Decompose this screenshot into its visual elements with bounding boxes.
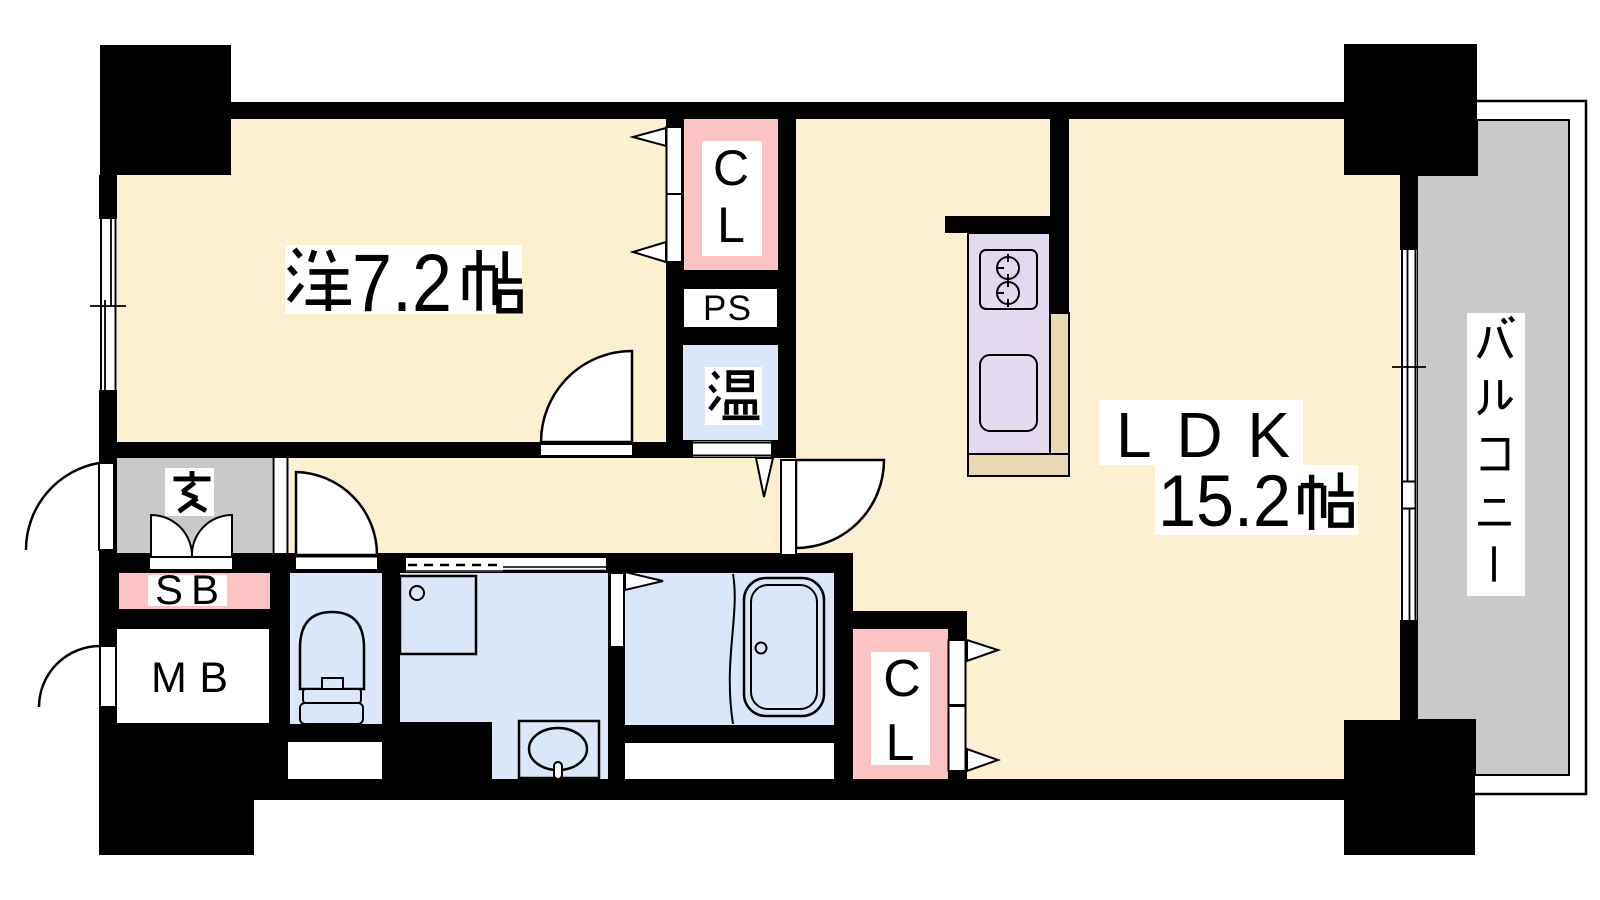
svg-text:L: L: [886, 714, 915, 772]
svg-text:C: C: [883, 650, 921, 708]
svg-text:C: C: [713, 140, 749, 196]
svg-text:15.2: 15.2: [1158, 461, 1291, 542]
svg-text:PS: PS: [703, 289, 751, 328]
svg-text:L: L: [717, 197, 745, 253]
svg-text:7.2: 7.2: [352, 238, 452, 329]
